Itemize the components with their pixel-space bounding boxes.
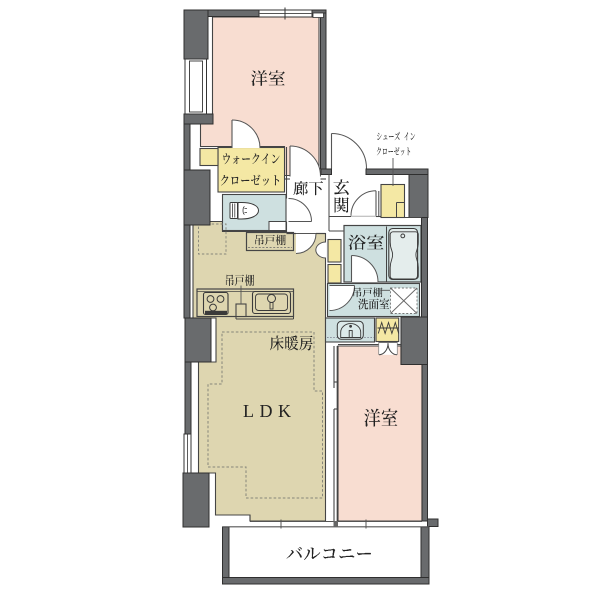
svg-text:LDK: LDK bbox=[243, 401, 297, 421]
